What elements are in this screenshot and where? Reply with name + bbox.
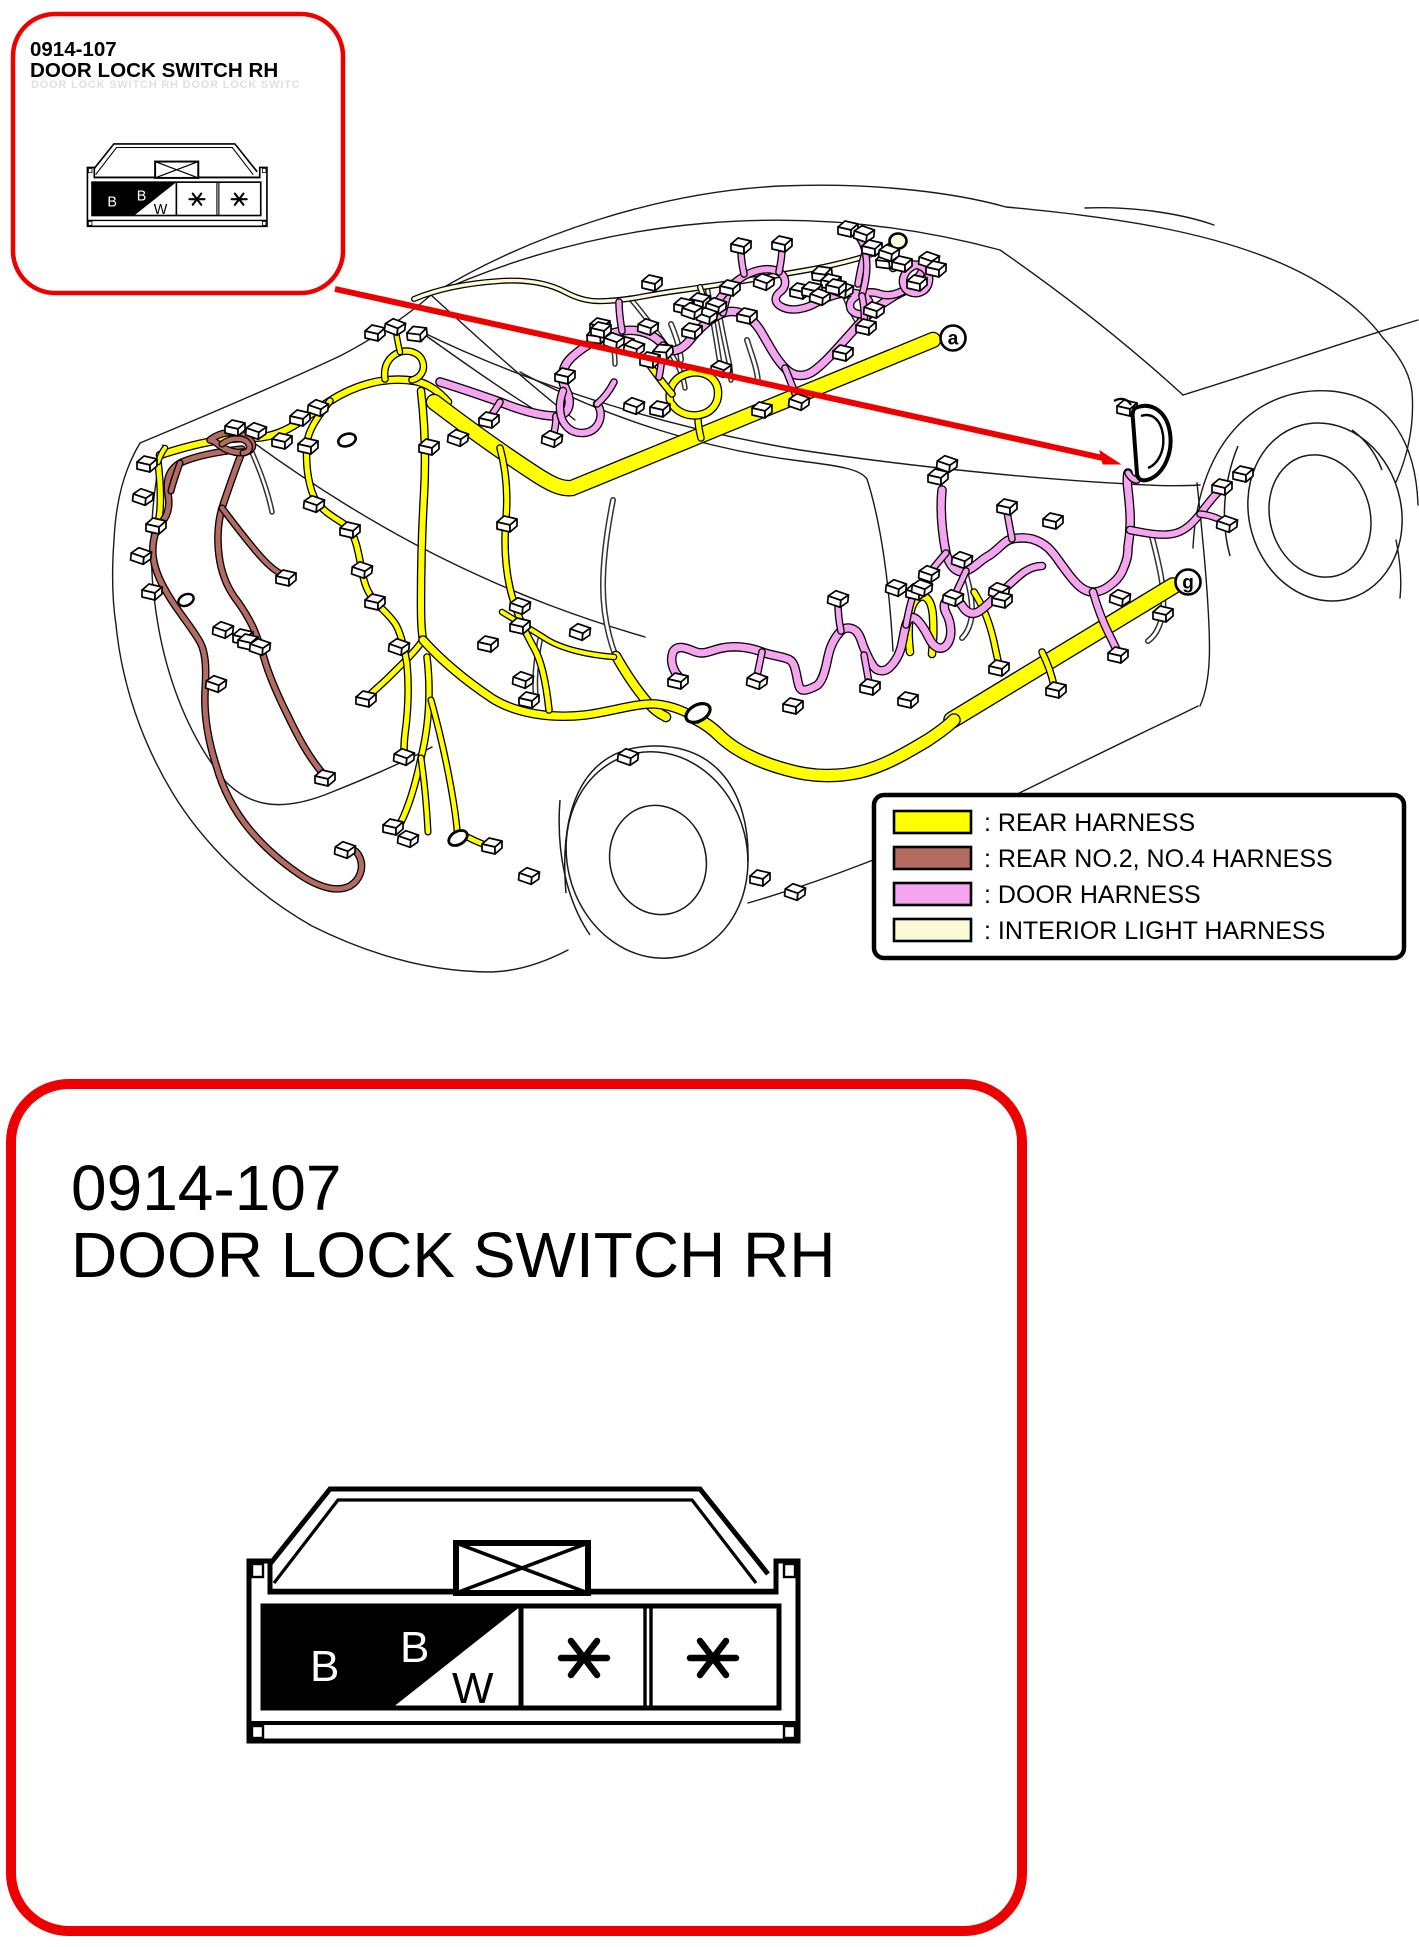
svg-text:: INTERIOR LIGHT HARNESS: : INTERIOR LIGHT HARNESS xyxy=(984,917,1325,945)
svg-text:: REAR HARNESS: : REAR HARNESS xyxy=(984,809,1195,837)
svg-text:a: a xyxy=(948,329,959,350)
svg-text:W: W xyxy=(452,1664,494,1713)
svg-text:0914-107: 0914-107 xyxy=(71,1152,341,1224)
svg-text:DOOR LOCK SWITCH RH DOOR LOCK: DOOR LOCK SWITCH RH DOOR LOCK SWITC xyxy=(31,79,300,91)
svg-text:g: g xyxy=(1182,573,1194,594)
svg-text:: REAR NO.2, NO.4 HARNESS: : REAR NO.2, NO.4 HARNESS xyxy=(984,845,1333,873)
svg-text:DOOR LOCK SWITCH RH: DOOR LOCK SWITCH RH xyxy=(71,1219,835,1291)
svg-text:B: B xyxy=(400,1623,429,1672)
svg-text:: DOOR HARNESS: : DOOR HARNESS xyxy=(984,881,1201,909)
svg-text:0914-107: 0914-107 xyxy=(30,38,117,61)
svg-text:B: B xyxy=(310,1642,339,1691)
